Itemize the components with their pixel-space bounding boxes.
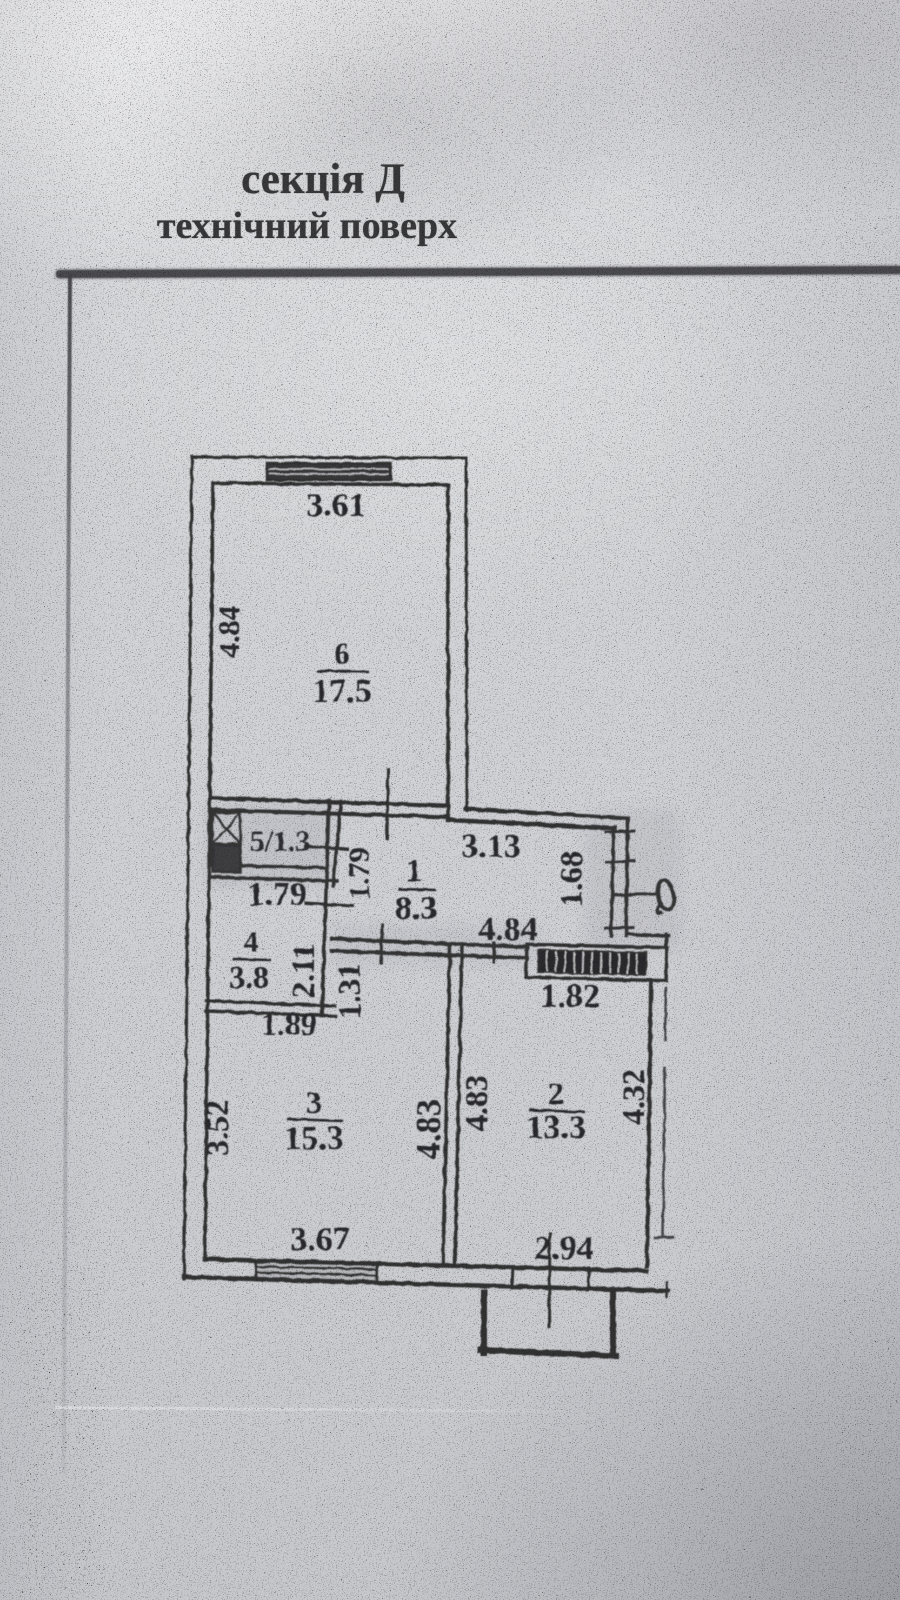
- svg-text:4.32: 4.32: [615, 1069, 651, 1125]
- svg-text:2.94: 2.94: [534, 1230, 594, 1267]
- svg-text:4: 4: [244, 926, 259, 959]
- svg-text:3.8: 3.8: [229, 959, 269, 995]
- svg-text:3.61: 3.61: [306, 487, 366, 524]
- svg-text:1.82: 1.82: [540, 978, 600, 1015]
- svg-text:4.84: 4.84: [213, 606, 246, 659]
- svg-text:17.5: 17.5: [312, 673, 372, 710]
- svg-text:1: 1: [406, 852, 422, 888]
- svg-text:2: 2: [548, 1075, 564, 1111]
- svg-text:15.3: 15.3: [284, 1120, 344, 1157]
- svg-text:3.67: 3.67: [290, 1221, 350, 1258]
- svg-text:3.52: 3.52: [199, 1100, 235, 1156]
- svg-text:1.31: 1.31: [331, 963, 367, 1019]
- svg-text:1.79: 1.79: [343, 848, 376, 901]
- svg-text:13.3: 13.3: [526, 1109, 586, 1146]
- svg-text:3: 3: [306, 1084, 322, 1120]
- svg-text:6: 6: [335, 637, 350, 670]
- svg-text:4.83: 4.83: [409, 1099, 448, 1160]
- svg-text:2.11: 2.11: [285, 944, 321, 998]
- svg-text:8.3: 8.3: [395, 890, 438, 927]
- svg-text:3.13: 3.13: [461, 828, 521, 865]
- svg-text:4.83: 4.83: [458, 1075, 494, 1131]
- svg-text:1.68: 1.68: [553, 851, 589, 907]
- svg-text:1.89: 1.89: [261, 1006, 317, 1042]
